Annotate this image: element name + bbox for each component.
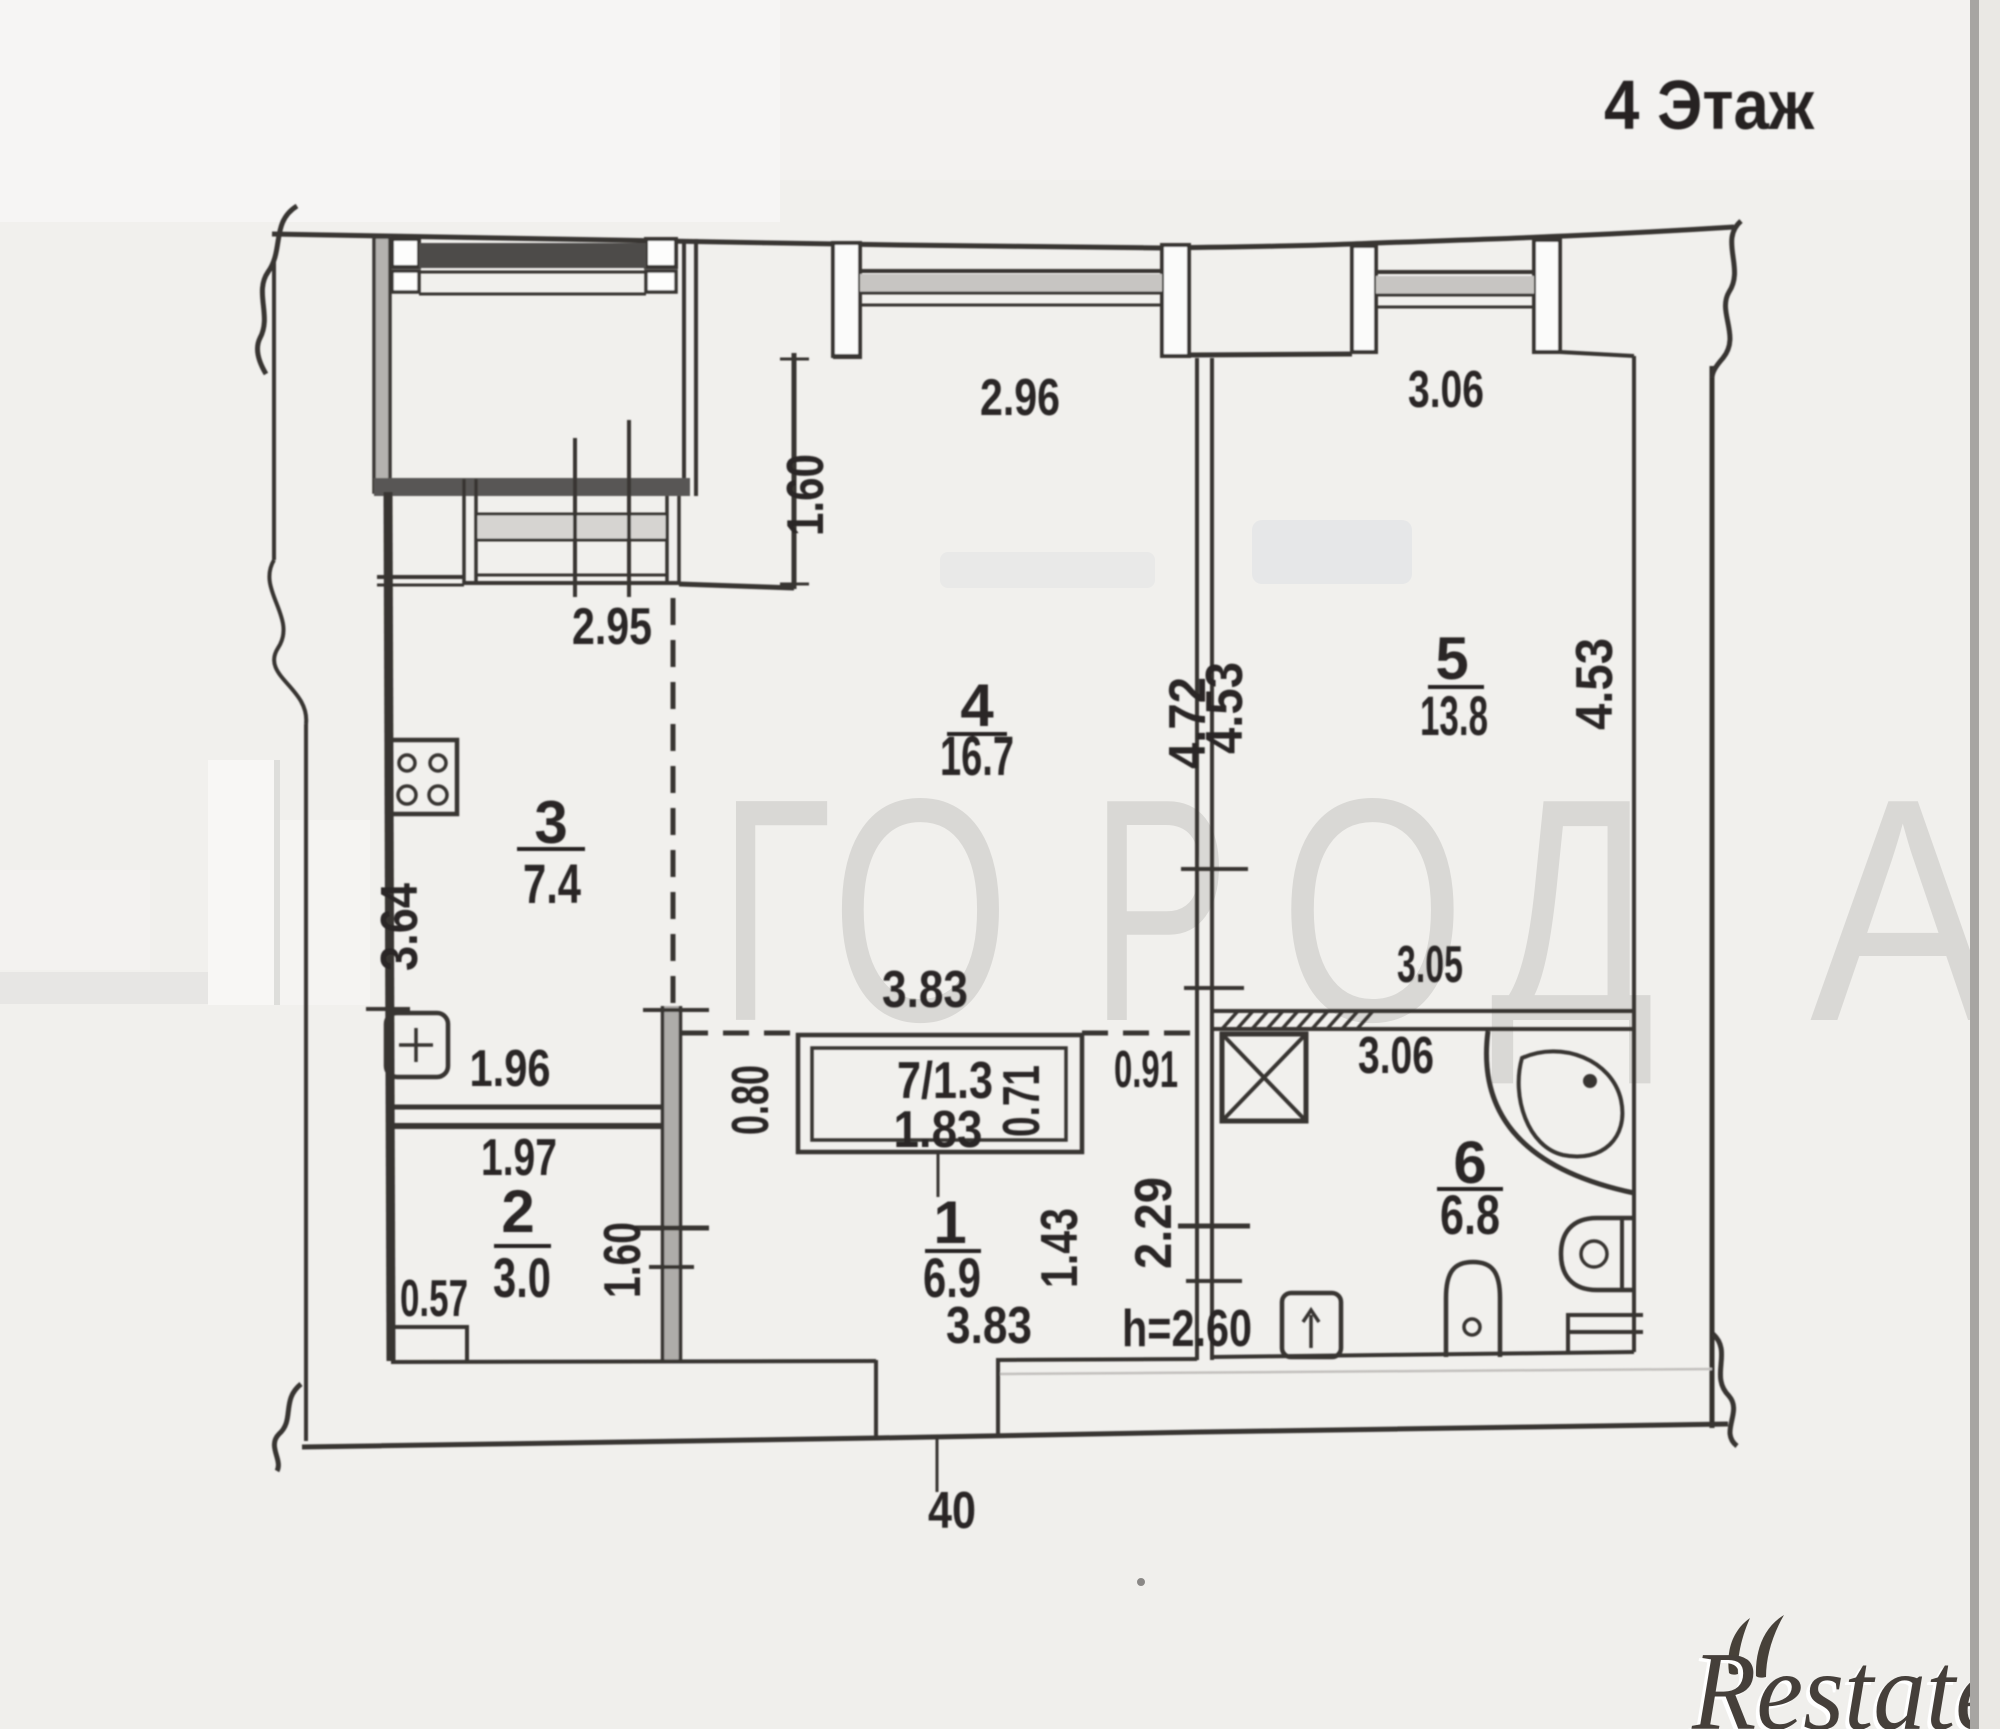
svg-text:40: 40 xyxy=(928,1482,976,1540)
svg-text:4 Этаж: 4 Этаж xyxy=(1604,66,1815,144)
svg-text:2.96: 2.96 xyxy=(980,369,1060,427)
svg-text:h=2.60: h=2.60 xyxy=(1122,1300,1252,1358)
svg-text:3: 3 xyxy=(534,789,567,856)
svg-text:2.95: 2.95 xyxy=(572,598,652,656)
svg-text:1.83: 1.83 xyxy=(894,1101,983,1159)
svg-text:6.8: 6.8 xyxy=(1440,1183,1500,1246)
svg-text:1.96: 1.96 xyxy=(470,1040,551,1098)
svg-text:3.64: 3.64 xyxy=(371,883,429,971)
svg-text:А: А xyxy=(1810,733,1996,1088)
svg-text:16.7: 16.7 xyxy=(940,724,1014,787)
svg-text:7.4: 7.4 xyxy=(523,852,581,915)
svg-text:Restate: Restate xyxy=(1691,1630,2000,1729)
svg-text:5: 5 xyxy=(1435,625,1468,692)
svg-text:3.06: 3.06 xyxy=(1408,361,1484,419)
svg-text:0.71: 0.71 xyxy=(993,1065,1051,1137)
svg-text:Д: Д xyxy=(1490,733,1655,1088)
svg-text:1.60: 1.60 xyxy=(777,454,835,536)
svg-text:3.06: 3.06 xyxy=(1358,1027,1434,1085)
svg-text:3.0: 3.0 xyxy=(493,1246,551,1309)
svg-text:13.8: 13.8 xyxy=(1420,684,1488,747)
svg-text:3.05: 3.05 xyxy=(1397,936,1463,994)
svg-text:Р: Р xyxy=(1090,733,1230,1088)
svg-text:3.83: 3.83 xyxy=(882,961,968,1019)
svg-text:4.53: 4.53 xyxy=(1566,638,1624,730)
svg-text:0.91: 0.91 xyxy=(1114,1041,1178,1099)
svg-text:0.57: 0.57 xyxy=(400,1270,468,1328)
svg-text:4.53: 4.53 xyxy=(1196,662,1254,754)
svg-text:1.60: 1.60 xyxy=(594,1222,652,1298)
svg-text:1.43: 1.43 xyxy=(1031,1208,1089,1288)
svg-text:3.83: 3.83 xyxy=(946,1297,1032,1355)
svg-text:2: 2 xyxy=(501,1178,534,1245)
svg-text:0.80: 0.80 xyxy=(722,1065,780,1135)
svg-text:2.29: 2.29 xyxy=(1125,1177,1183,1269)
svg-text:1.97: 1.97 xyxy=(481,1129,557,1187)
